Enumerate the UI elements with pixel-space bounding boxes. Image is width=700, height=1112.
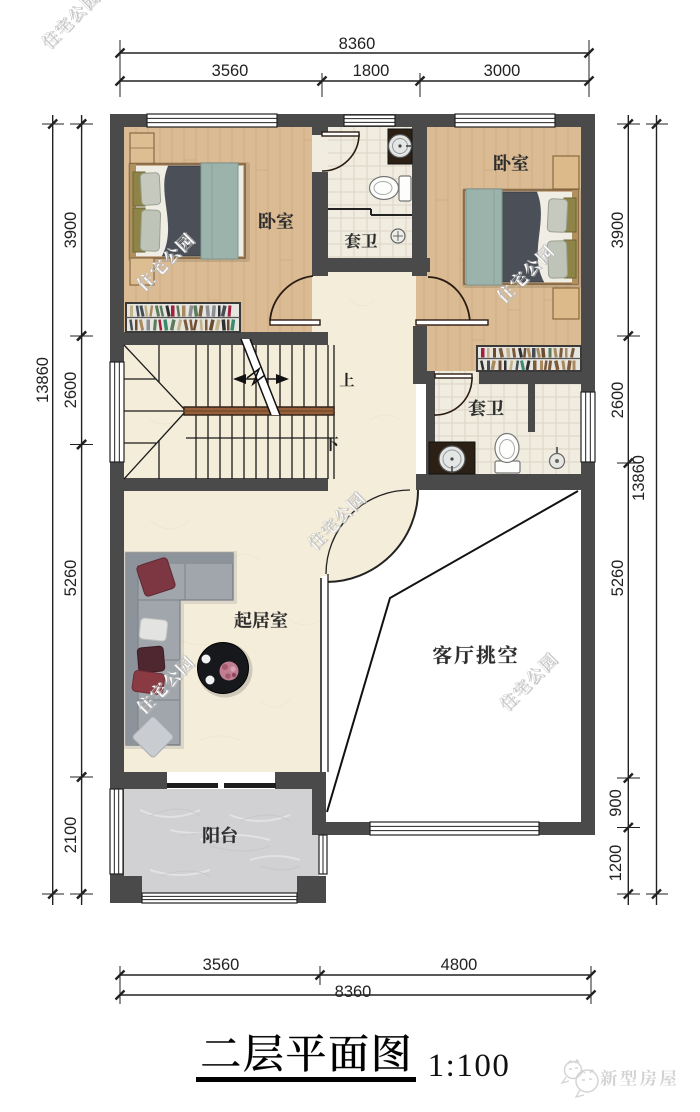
svg-text:3560: 3560 — [203, 956, 240, 974]
svg-text:3900: 3900 — [609, 212, 627, 249]
svg-text:900: 900 — [607, 789, 625, 817]
svg-text:2600: 2600 — [62, 372, 80, 409]
svg-text:13860: 13860 — [630, 455, 648, 501]
svg-text:5260: 5260 — [609, 560, 627, 597]
svg-text:1200: 1200 — [607, 845, 625, 882]
svg-text:3000: 3000 — [484, 62, 521, 80]
svg-text:5260: 5260 — [62, 560, 80, 597]
svg-text:13860: 13860 — [34, 357, 52, 403]
svg-text:2100: 2100 — [62, 817, 80, 854]
svg-text:4800: 4800 — [441, 956, 478, 974]
svg-text:1:100: 1:100 — [428, 1048, 511, 1084]
svg-text:3900: 3900 — [62, 212, 80, 249]
svg-text:8360: 8360 — [335, 983, 372, 1001]
svg-text:3560: 3560 — [212, 62, 249, 80]
svg-text:8360: 8360 — [339, 35, 376, 53]
svg-text:2600: 2600 — [609, 382, 627, 419]
svg-text:1800: 1800 — [353, 62, 390, 80]
